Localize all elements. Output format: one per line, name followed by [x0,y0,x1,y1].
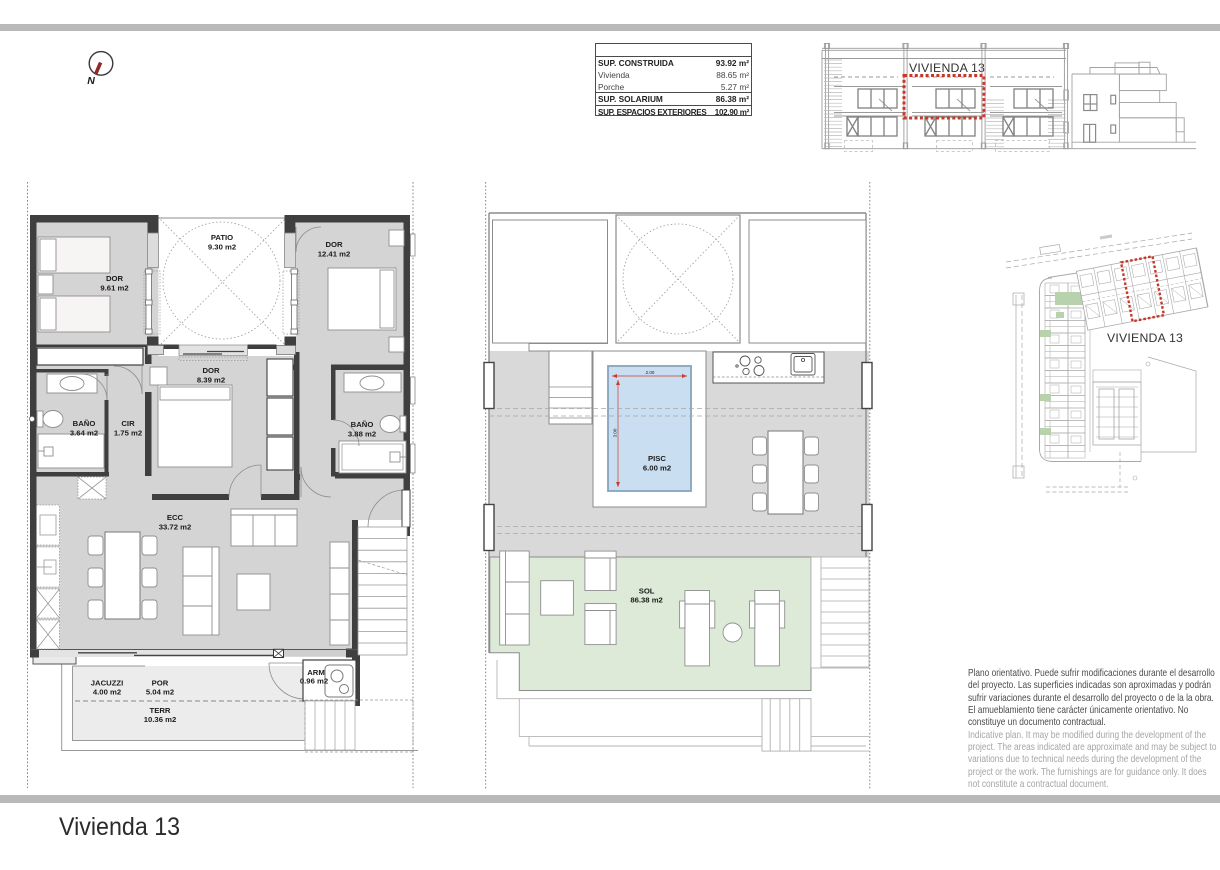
svg-text:ECC: ECC [167,513,184,522]
svg-text:8.39 m2: 8.39 m2 [197,376,225,385]
svg-text:CIR: CIR [121,419,135,428]
svg-text:3.88 m2: 3.88 m2 [348,430,376,439]
svg-text:DOR: DOR [202,366,220,375]
svg-text:BAÑO: BAÑO [73,419,96,428]
svg-text:TERR: TERR [150,706,171,715]
svg-text:9.30 m2: 9.30 m2 [208,243,236,252]
svg-text:PISC: PISC [648,454,666,463]
svg-text:9.61 m2: 9.61 m2 [100,284,128,293]
svg-text:6.00 m2: 6.00 m2 [643,464,671,473]
svg-text:2.00: 2.00 [646,370,655,375]
svg-text:10.36 m2: 10.36 m2 [144,715,176,724]
svg-text:SOL: SOL [639,587,655,596]
svg-text:4.00 m2: 4.00 m2 [93,688,121,697]
svg-text:PATIO: PATIO [211,233,233,242]
svg-text:12.41 m2: 12.41 m2 [318,250,350,259]
svg-text:3.64 m2: 3.64 m2 [70,429,98,438]
svg-text:BAÑO: BAÑO [351,420,374,429]
svg-text:3.00: 3.00 [613,428,618,437]
svg-text:N: N [87,75,95,87]
svg-text:JACUZZI: JACUZZI [91,679,123,688]
svg-text:DOR: DOR [325,240,343,249]
svg-text:0.96 m2: 0.96 m2 [300,677,328,686]
svg-text:1.75 m2: 1.75 m2 [114,429,142,438]
svg-text:33.72 m2: 33.72 m2 [159,523,191,532]
svg-text:86.38 m2: 86.38 m2 [630,596,662,605]
svg-text:POR: POR [152,679,169,688]
svg-text:5.04 m2: 5.04 m2 [146,688,174,697]
svg-text:DOR: DOR [106,274,124,283]
